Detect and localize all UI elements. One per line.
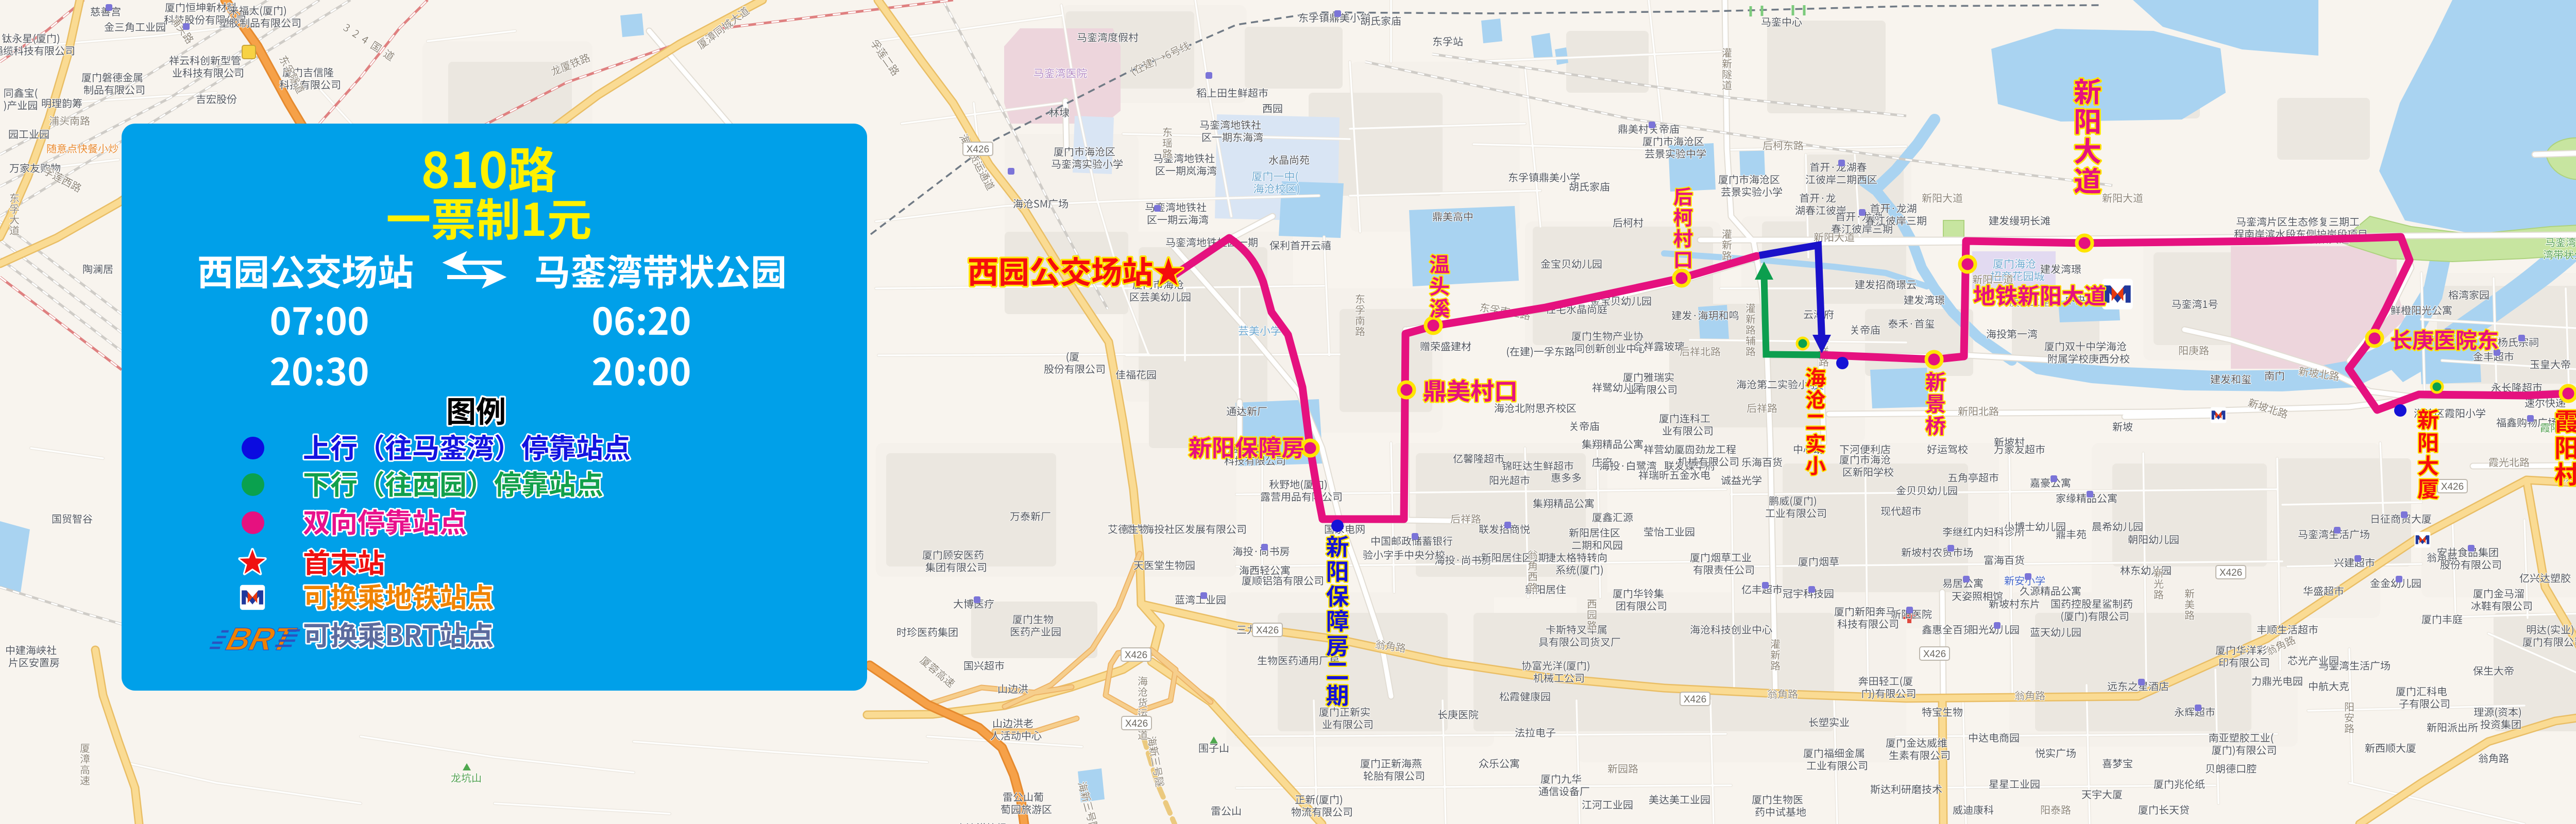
svg-text:BRT: BRT — [223, 622, 299, 657]
svg-text:X426: X426 — [1923, 649, 1946, 660]
svg-text:X426: X426 — [967, 144, 989, 155]
svg-text:X426: X426 — [1125, 718, 1148, 729]
svg-text:X426: X426 — [1125, 650, 1147, 661]
svg-text:X426: X426 — [2219, 568, 2242, 578]
svg-text:X426: X426 — [2441, 482, 2464, 492]
svg-text:X426: X426 — [1256, 625, 1279, 636]
svg-text:X426: X426 — [1684, 694, 1706, 705]
